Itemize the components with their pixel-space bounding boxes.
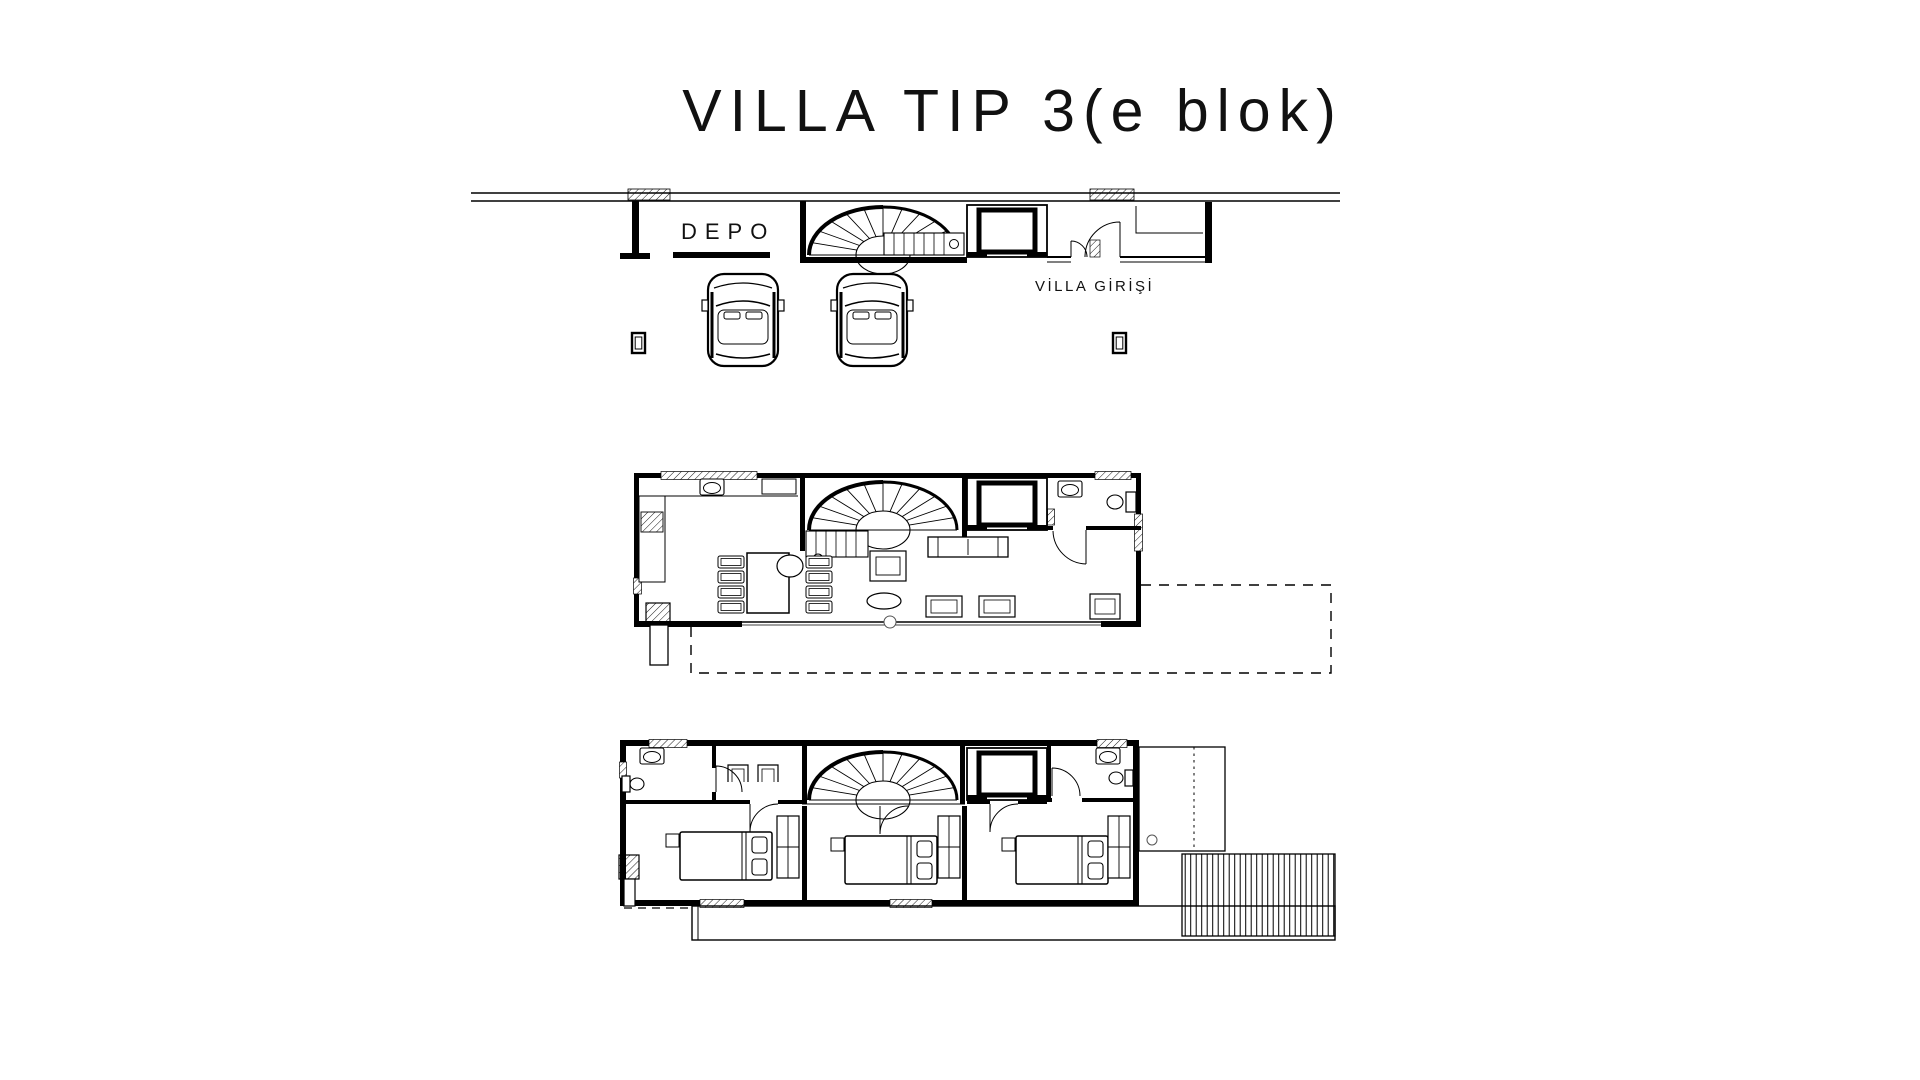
bed [845, 836, 937, 884]
storage-room-label: DEPO [681, 219, 775, 244]
wc-sink [1058, 481, 1082, 497]
bathroom-sink [640, 748, 664, 764]
bath-window [649, 740, 687, 748]
bathroom-sink [1096, 748, 1120, 764]
wardrobe [777, 816, 799, 878]
cooktop [641, 512, 663, 532]
garage-rear-wall [673, 252, 770, 258]
entrance-window [1090, 189, 1134, 200]
depo-window [628, 189, 670, 200]
kitchen-window [661, 472, 757, 480]
balcony-symbol [1147, 835, 1157, 845]
villa-entrance-label: VİLLA GİRİŞİ [1035, 277, 1154, 295]
stair-run [884, 233, 964, 255]
drawing-sheet: VILLA TIP 3(e blok) DEPO VİLLA GİRİŞİ [0, 0, 1920, 1080]
floor-plan-drawing: VILLA TIP 3(e blok) DEPO VİLLA GİRİŞİ [0, 0, 1920, 1080]
dining-chair [806, 586, 832, 598]
spiral-staircase [809, 752, 957, 819]
entry-right-wall [1205, 202, 1212, 263]
side-unit [1090, 594, 1120, 619]
parked-car [702, 274, 784, 366]
bathroom-left-door [716, 766, 742, 792]
corner-column [646, 603, 670, 625]
door-jamb-hatch [1090, 240, 1100, 257]
lounge-chair [926, 596, 962, 617]
lounge-chair [979, 596, 1015, 617]
parking-post [1113, 333, 1126, 353]
bathroom-right-door [1052, 768, 1080, 796]
side-window [1135, 514, 1143, 551]
bed [680, 832, 772, 880]
hall-cabinet [758, 765, 778, 782]
dining-chair [718, 586, 744, 598]
wardrobe [938, 816, 960, 878]
nightstand [666, 834, 679, 847]
dining-chair [806, 571, 832, 583]
bathroom-toilet [622, 776, 644, 792]
corner-column [619, 855, 639, 879]
dining-chair [718, 556, 744, 568]
bathroom-left-partition [620, 746, 716, 804]
bedroom-door [750, 804, 778, 832]
nightstand [831, 838, 844, 851]
bathroom-toilet [1109, 770, 1133, 786]
dining-chair [806, 556, 832, 568]
wardrobe [1108, 816, 1130, 878]
wc-partition [1047, 526, 1141, 530]
round-table [777, 555, 803, 577]
elevator [967, 748, 1047, 800]
boundary-road-line [471, 193, 1340, 201]
bath-window [1097, 740, 1127, 748]
entry-step-line [1136, 206, 1203, 233]
wc-toilet [1107, 492, 1136, 512]
wc-window [1095, 472, 1131, 480]
wc-door [1053, 530, 1086, 564]
column-stem [650, 625, 668, 665]
parked-car [831, 274, 913, 366]
door-pivot-symbol [884, 616, 896, 628]
coffee-table [867, 593, 901, 609]
armchair [870, 551, 906, 581]
bedroom-door [990, 804, 1018, 832]
dining-chair [718, 601, 744, 613]
hall-cabinet [728, 765, 748, 782]
elevator [967, 205, 1047, 257]
dining-chair [806, 601, 832, 613]
floor-plan-garage-level: DEPO VİLLA GİRİŞİ [471, 189, 1340, 366]
parking-post [632, 333, 645, 353]
wood-deck [1182, 854, 1335, 936]
gate-post-wall [620, 201, 650, 259]
nightstand [1002, 838, 1015, 851]
floor-plan-ground-level [634, 472, 1332, 674]
elevator [967, 478, 1047, 530]
kitchen-sink [700, 479, 724, 495]
kitchen-counter [639, 496, 665, 582]
column-stem [624, 879, 635, 906]
sofa [928, 537, 1008, 557]
wc-jamb-hatch [1048, 509, 1055, 525]
bed [1016, 836, 1108, 884]
floor-plan-bedroom-level [619, 740, 1335, 941]
dining-chair [718, 571, 744, 583]
bedroom-door [880, 806, 908, 834]
kitchen-cabinet [762, 479, 796, 494]
sheet-title: VILLA TIP 3(e blok) [682, 78, 1343, 144]
